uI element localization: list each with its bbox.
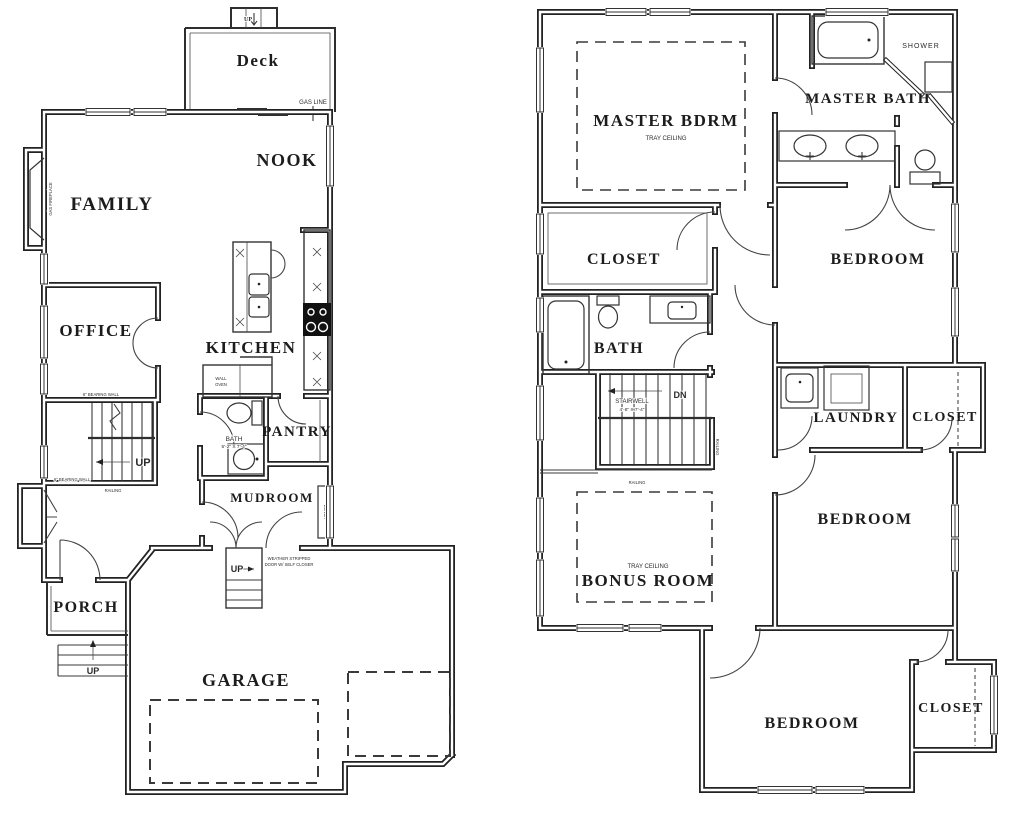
weather-stripped-label-2: DOOR W/ SELF CLOSER [265,562,314,567]
floorplan-svg: Deck UP GAS LINE NOOK FAMILY GAS FIREPLA… [0,0,1024,817]
railing-label-vertical: RAILING [715,439,720,456]
wall-oven-counter [203,357,272,397]
room-label-pantry: PANTRY [262,424,332,440]
stairwell-label: STAIRWELL [615,399,649,405]
bath1-dimension: 5'-2" X 7'-4" [222,444,247,450]
room-label-bath2: BATH [594,340,644,357]
laundry-fixtures [781,366,869,410]
room-label-bedroom-middle: BEDROOM [818,511,913,528]
room-label-kitchen: KITCHEN [206,338,297,357]
deck-up-label: UP [244,17,252,23]
tray-ceiling-master-label: TRAY CEILING [645,136,686,142]
garage-door-zone-1 [150,700,318,783]
room-label-porch: PORCH [53,599,118,616]
room-label-lower-closet: CLOSET [918,701,984,716]
garage-door-zone-2 [348,672,450,756]
gas-line-label: GAS LINE [299,100,327,106]
toilet-tank-icon [252,401,262,425]
room-label-laundry: LAUNDRY [814,410,899,426]
room-label-bath1: BATH [226,436,243,443]
cooktop-icon [303,303,331,336]
wc-toilet-bowl-icon [915,150,935,170]
room-label-nook: NOOK [256,150,317,170]
stairs-railing-label: RAILING [105,488,122,493]
down-label: DN [674,390,687,400]
first-floor-plan: Deck UP GAS LINE NOOK FAMILY GAS FIREPLA… [20,8,452,792]
windows-layer [39,7,999,795]
room-label-office: OFFICE [59,321,132,340]
room-label-master-bath: MASTER BATH [805,91,931,107]
hall-vanity-sink-icon [668,302,696,319]
wall-oven-label-1: WALL [215,376,227,381]
second-floor-plan: MASTER BDRM TRAY CEILING SHOWER MASTER B… [540,12,994,790]
porch-up-label: UP [87,666,100,676]
room-label-bonus-room: BONUS ROOM [582,571,715,590]
railing-label-horizontal: RAILING [629,480,646,485]
sink-icon [234,449,255,470]
kitchen-island [233,242,285,332]
toilet-bowl-icon [227,403,251,423]
weather-stripped-label-1: WEATHER STRIPPED [268,556,311,561]
room-label-master-closet: CLOSET [587,251,661,268]
main-stairs [88,403,155,481]
room-label-bedroom-upper: BEDROOM [831,251,926,268]
garage-stairs [226,548,262,608]
wall-oven-label-2: OVEN [215,382,227,387]
room-label-master-bdrm: MASTER BDRM [593,111,738,130]
bearing-wall-label-upper: 6" BEARING WALL [83,392,120,397]
tray-ceiling-bonus-label: TRAY CEILING [627,564,668,570]
porch-outline [47,582,128,676]
bearing-wall-label-lower: 6" BEARING WALL [54,477,91,482]
room-label-laundry-closet: CLOSET [912,410,978,425]
room-label-mudroom: MUDROOM [230,490,313,505]
shower-seat-icon [925,62,952,92]
room-label-family: FAMILY [71,194,154,215]
hall-toilet-tank-icon [597,296,619,305]
stairwell [540,373,712,473]
hall-bath-fixtures [543,296,710,374]
kitchen-wall-counter [303,230,331,390]
room-label-bedroom-lower: BEDROOM [765,715,860,732]
stairs-up-label: UP [135,457,150,469]
garage-stairs-up-label: UP [231,564,244,574]
room-label-deck: Deck [237,51,280,70]
gas-fireplace-label: GAS FIREPLACE [48,182,53,215]
master-closet-shelf [548,213,707,284]
room-label-garage: GARAGE [202,670,290,690]
shower-label: SHOWER [902,43,940,50]
stairwell-dimension: 4'-8" X 7'-4" [620,407,645,413]
floorplan-canvas: Deck UP GAS LINE NOOK FAMILY GAS FIREPLA… [0,0,1024,817]
hall-toilet-bowl-icon [599,306,618,328]
